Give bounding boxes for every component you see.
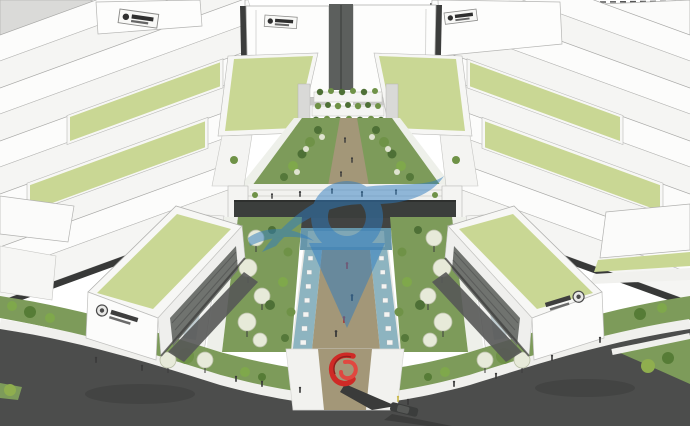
architectural-rendering — [0, 0, 690, 426]
rendering-canvas — [0, 0, 690, 426]
building-sign-plaque — [264, 15, 297, 29]
center-entry-plaza — [286, 349, 404, 410]
